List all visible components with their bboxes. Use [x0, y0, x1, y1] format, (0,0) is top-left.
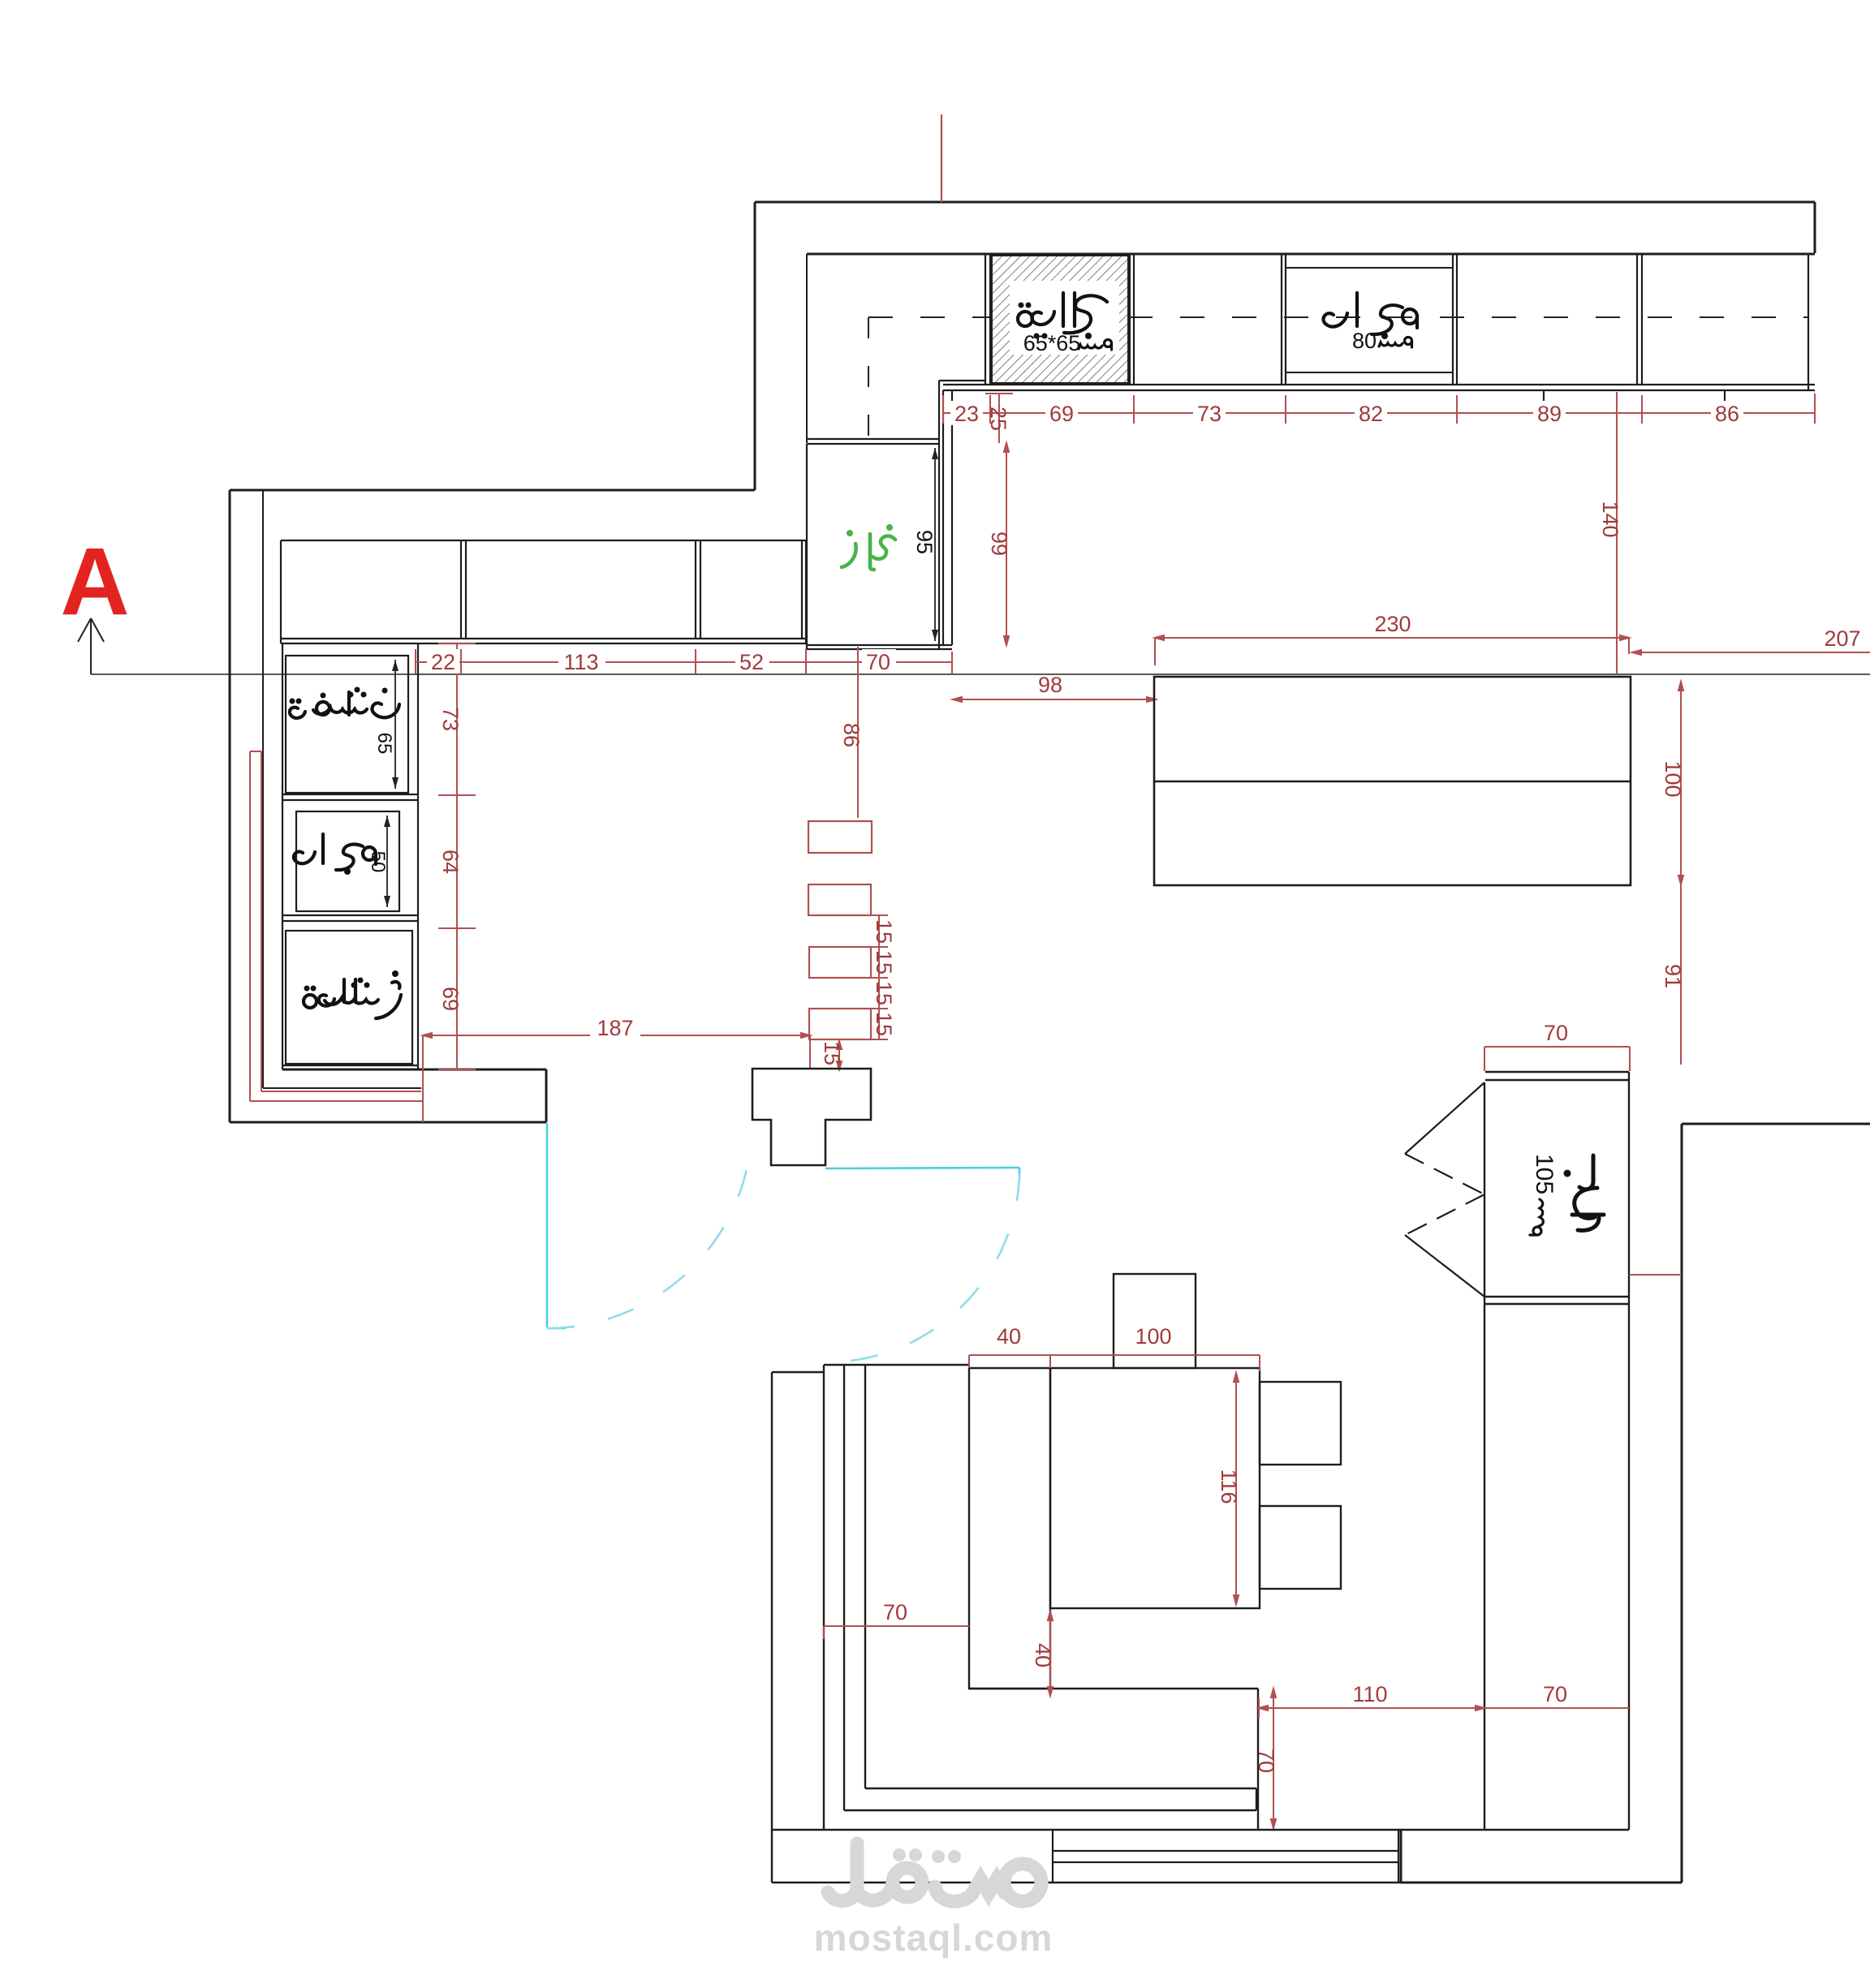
svg-text:99: 99: [987, 531, 1011, 556]
svg-text:70: 70: [866, 650, 890, 674]
svg-text:100: 100: [1135, 1324, 1171, 1349]
svg-text:140: 140: [1598, 501, 1622, 537]
svg-text:70: 70: [1544, 1021, 1568, 1045]
svg-text:70: 70: [1254, 1749, 1278, 1773]
svg-text:70: 70: [883, 1600, 907, 1624]
svg-text:52: 52: [739, 650, 764, 674]
svg-text:23: 23: [954, 402, 979, 426]
svg-text:82: 82: [1359, 402, 1383, 426]
svg-text:91: 91: [1661, 964, 1685, 988]
svg-text:80: 80: [1352, 329, 1377, 353]
svg-text:207: 207: [1824, 626, 1860, 651]
svg-text:95: 95: [912, 530, 937, 554]
svg-text:69: 69: [1049, 402, 1074, 426]
svg-text:98: 98: [1038, 673, 1062, 697]
svg-text:100: 100: [1661, 760, 1685, 797]
svg-text:69: 69: [438, 987, 463, 1011]
svg-text:73: 73: [1197, 402, 1222, 426]
svg-text:15: 15: [872, 1012, 896, 1036]
svg-text:86: 86: [839, 723, 864, 747]
svg-text:65: 65: [373, 733, 395, 755]
svg-text:15: 15: [820, 1041, 844, 1065]
svg-text:15: 15: [872, 950, 896, 975]
svg-text:187: 187: [597, 1016, 633, 1040]
svg-text:mostaql.com: mostaql.com: [814, 1917, 1053, 1959]
svg-text:22: 22: [431, 650, 455, 674]
svg-text:40: 40: [1031, 1643, 1055, 1667]
svg-text:25: 25: [986, 407, 1010, 431]
svg-text:110: 110: [1352, 1682, 1387, 1706]
svg-text:73: 73: [438, 707, 463, 731]
svg-text:50: 50: [367, 851, 389, 873]
svg-text:A: A: [60, 528, 129, 635]
svg-text:15: 15: [872, 919, 896, 944]
svg-text:89: 89: [1537, 402, 1562, 426]
svg-text:15: 15: [872, 981, 896, 1005]
svg-text:105: 105: [1531, 1154, 1558, 1194]
svg-text:70: 70: [1543, 1682, 1567, 1706]
svg-text:65*65: 65*65: [1023, 331, 1081, 355]
svg-text:86: 86: [1715, 402, 1739, 426]
svg-text:40: 40: [997, 1324, 1021, 1349]
svg-text:113: 113: [563, 650, 598, 674]
svg-text:230: 230: [1374, 612, 1411, 636]
svg-text:116: 116: [1217, 1469, 1241, 1504]
svg-text:64: 64: [438, 850, 463, 874]
